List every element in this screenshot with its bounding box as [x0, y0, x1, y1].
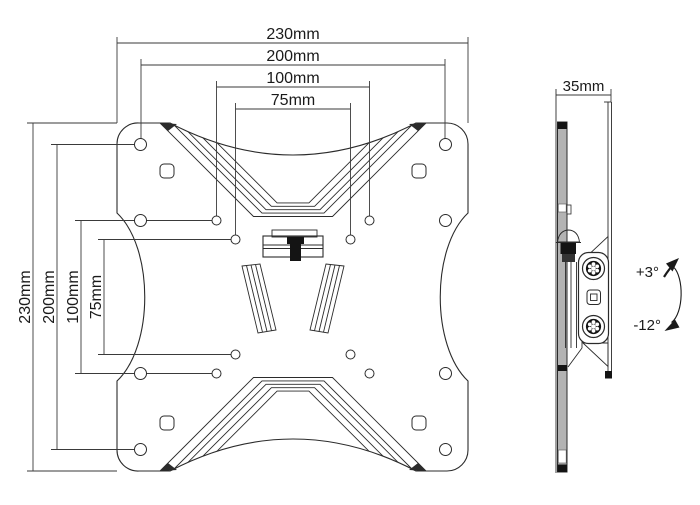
dim-75mm-left: 75mm [88, 240, 231, 355]
mounting-hole [231, 235, 240, 244]
side-view: 35mm [556, 78, 682, 473]
bracket-square-hole [587, 290, 601, 305]
tilt-screw-top [583, 258, 605, 280]
technical-drawing: 230mm 200mm 100mm 75mm 230mm [0, 0, 700, 505]
dimensions-left: 230mm 200mm 100mm 75mm [17, 123, 231, 471]
square-hole [412, 164, 426, 178]
tilt-arc-arrow [664, 258, 681, 331]
square-hole [160, 416, 174, 430]
dim-left-75-label: 75mm [88, 275, 105, 319]
dim-top-100-label: 100mm [266, 70, 319, 87]
dim-left-230-label: 230mm [17, 270, 34, 323]
mounting-hole [440, 444, 452, 456]
mounting-hole [231, 350, 240, 359]
tilt-annotation: +3° -12° [633, 258, 681, 334]
mounting-hole [135, 368, 147, 380]
mounting-hole [440, 215, 452, 227]
dim-depth-label: 35mm [563, 78, 605, 95]
dim-left-200-label: 200mm [41, 270, 58, 323]
mounting-hole [365, 369, 374, 378]
tilt-screw-bottom [583, 316, 605, 338]
dimensions-top: 230mm 200mm 100mm 75mm [117, 26, 468, 235]
mounting-hole [212, 216, 221, 225]
center-ribs [242, 264, 344, 333]
bracket-gusset-bottom [583, 343, 608, 367]
locking-latch [263, 230, 323, 261]
dim-35mm-depth: 35mm [556, 78, 611, 102]
latch-handle [287, 237, 304, 244]
tilt-down-label: -12° [633, 317, 661, 334]
tv-plate-rail [558, 122, 572, 472]
mounting-hole [440, 368, 452, 380]
mounting-hole [212, 369, 221, 378]
mounting-hole [346, 350, 355, 359]
square-hole [160, 164, 174, 178]
mounting-hole [365, 216, 374, 225]
mounting-hole [346, 235, 355, 244]
dim-left-100-label: 100mm [65, 270, 82, 323]
dim-top-200-label: 200mm [266, 48, 319, 65]
mounting-holes [135, 139, 452, 456]
mounting-hole [135, 444, 147, 456]
mounting-hole [440, 139, 452, 151]
dim-top-75-label: 75mm [271, 92, 315, 109]
square-hole [412, 416, 426, 430]
tilt-bracket [579, 253, 609, 344]
dim-top-230-label: 230mm [266, 26, 319, 43]
mounting-hole [135, 139, 147, 151]
mounting-hole [135, 215, 147, 227]
tilt-up-label: +3° [636, 264, 659, 281]
